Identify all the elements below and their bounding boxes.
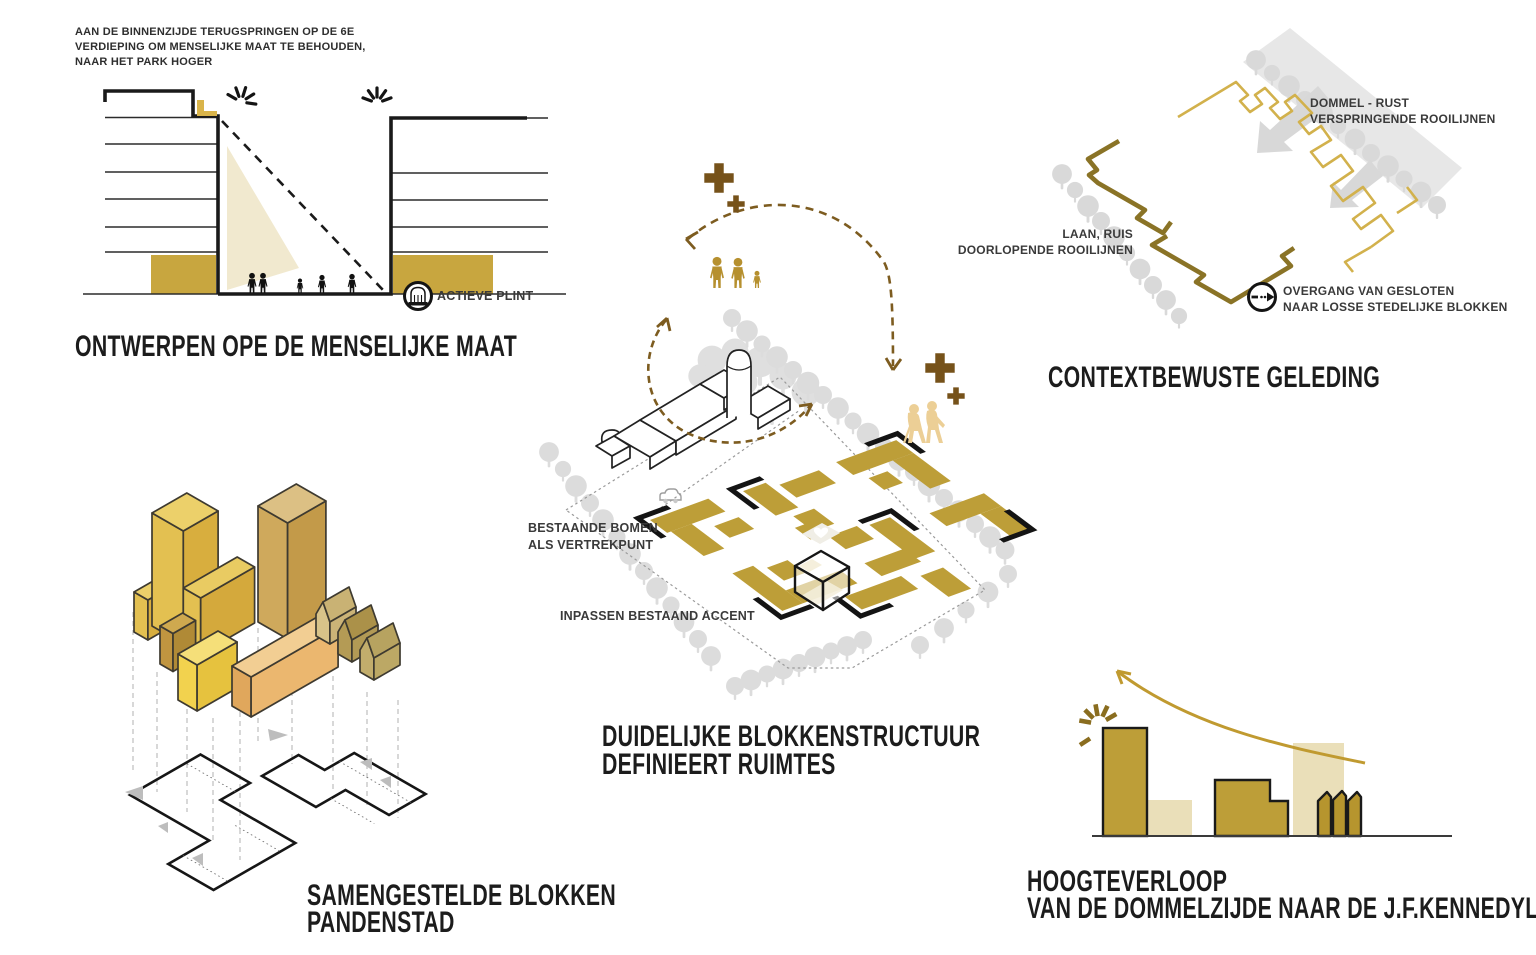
family-figures <box>710 257 761 288</box>
rotation-triangles <box>125 729 391 866</box>
masterplan-concept-sheet: AAN DE BINNENZIJDE TERUGSPRINGEN OP DE 6… <box>0 0 1536 955</box>
hoogteverloop-drawing <box>1079 671 1452 836</box>
arrow-gray-icon <box>1330 160 1383 208</box>
courtyard-people <box>248 273 357 293</box>
massing-blocks <box>134 484 400 717</box>
actieve-plint-label: ACTIEVE PLINT <box>437 290 533 303</box>
section-annotation-line3: NAAR HET PARK HOGER <box>75 57 212 69</box>
section-annotation-line2: VERDIEPING OM MENSELIJKE MAAT TE BEHOUDE… <box>75 42 366 54</box>
pandenstad-drawing <box>89 484 425 890</box>
sparkle-icon <box>363 88 391 101</box>
doorlopende-rooilijnen-line <box>1088 141 1294 302</box>
blokken-title-line2: DEFINIEERT RUIMTES <box>602 748 836 782</box>
bar-mid-stepped <box>1215 780 1288 836</box>
setback-accent <box>197 100 217 116</box>
plinth-left <box>151 255 216 294</box>
laan-label-line2: DOORLOPENDE ROOILIJNEN <box>950 244 1133 257</box>
overgang-label-line2: NAAR LOSSE STEDELIJKE BLOKKEN <box>1283 301 1508 314</box>
bomen-label-line2: ALS VERTREKPUNT <box>528 539 653 552</box>
bar-beige-low <box>1147 800 1192 836</box>
flow-arc-large <box>686 205 901 370</box>
pandenstad-title-line2: PANDENSTAD <box>307 906 455 940</box>
bomen-label-line1: BESTAANDE BOMEN <box>528 522 658 535</box>
section-annotation-line1: AAN DE BINNENZIJDE TERUGSPRINGEN OP DE 6… <box>75 27 354 39</box>
plan-outline-left <box>89 755 325 891</box>
dommel-label-line2: VERSPRINGENDE ROOILIJNEN <box>1310 113 1496 126</box>
dommel-label-line1: DOMMEL - RUST <box>1310 97 1409 110</box>
daylight-triangle <box>227 146 299 290</box>
actieve-plint-icon <box>405 283 432 310</box>
plan-outline-right <box>262 738 426 832</box>
diagram-canvas <box>0 0 1536 955</box>
accent-label: INPASSEN BESTAAND ACCENT <box>560 610 755 623</box>
context-title: CONTEXTBEWUSTE GELEDING <box>1048 361 1380 395</box>
overgang-label-line1: OVERGANG VAN GESLOTEN <box>1283 285 1454 298</box>
section-title: ONTWERPEN OPE DE MENSELIJKE MAAT <box>75 330 517 364</box>
factory-sawtooth <box>1318 791 1361 836</box>
bar-tall <box>1103 728 1147 836</box>
tree-band-south <box>726 631 872 700</box>
tree-band-west <box>539 442 721 671</box>
elderly-figures <box>904 401 945 443</box>
hoogteverloop-title-line2: VAN DE DOMMELZIJDE NAAR DE J.F.KENNEDYLA… <box>1027 892 1536 926</box>
tree-band-ne <box>723 309 1014 565</box>
sparkle-icon <box>228 88 256 104</box>
section-drawing <box>83 88 566 310</box>
laan-label-line1: LAAN, RUIS <box>950 228 1133 241</box>
overgang-icon <box>1249 284 1276 311</box>
